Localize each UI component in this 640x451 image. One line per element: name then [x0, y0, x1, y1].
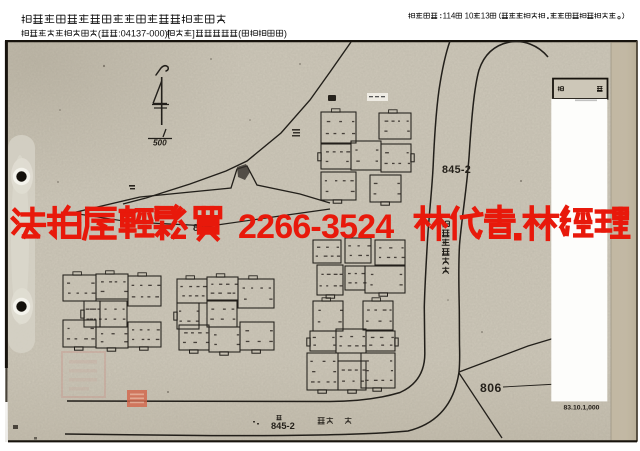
svg-text:83.10.1,000: 83.10.1,000 [564, 405, 600, 412]
svg-text:(: ( [98, 28, 101, 38]
svg-text::04137-000)[: :04137-000)[ [118, 28, 171, 38]
svg-text:2266-3524: 2266-3524 [238, 208, 394, 246]
svg-text:806: 806 [480, 381, 502, 395]
svg-text:845-2: 845-2 [271, 421, 295, 431]
svg-text:10: 10 [465, 11, 474, 20]
svg-text:845-2: 845-2 [442, 164, 471, 176]
svg-text:(: ( [238, 28, 241, 38]
svg-text:114: 114 [443, 11, 456, 20]
svg-text:13: 13 [481, 11, 490, 20]
svg-text:500: 500 [153, 139, 167, 148]
svg-text:]: ] [192, 28, 195, 38]
svg-text:): ) [284, 28, 287, 38]
